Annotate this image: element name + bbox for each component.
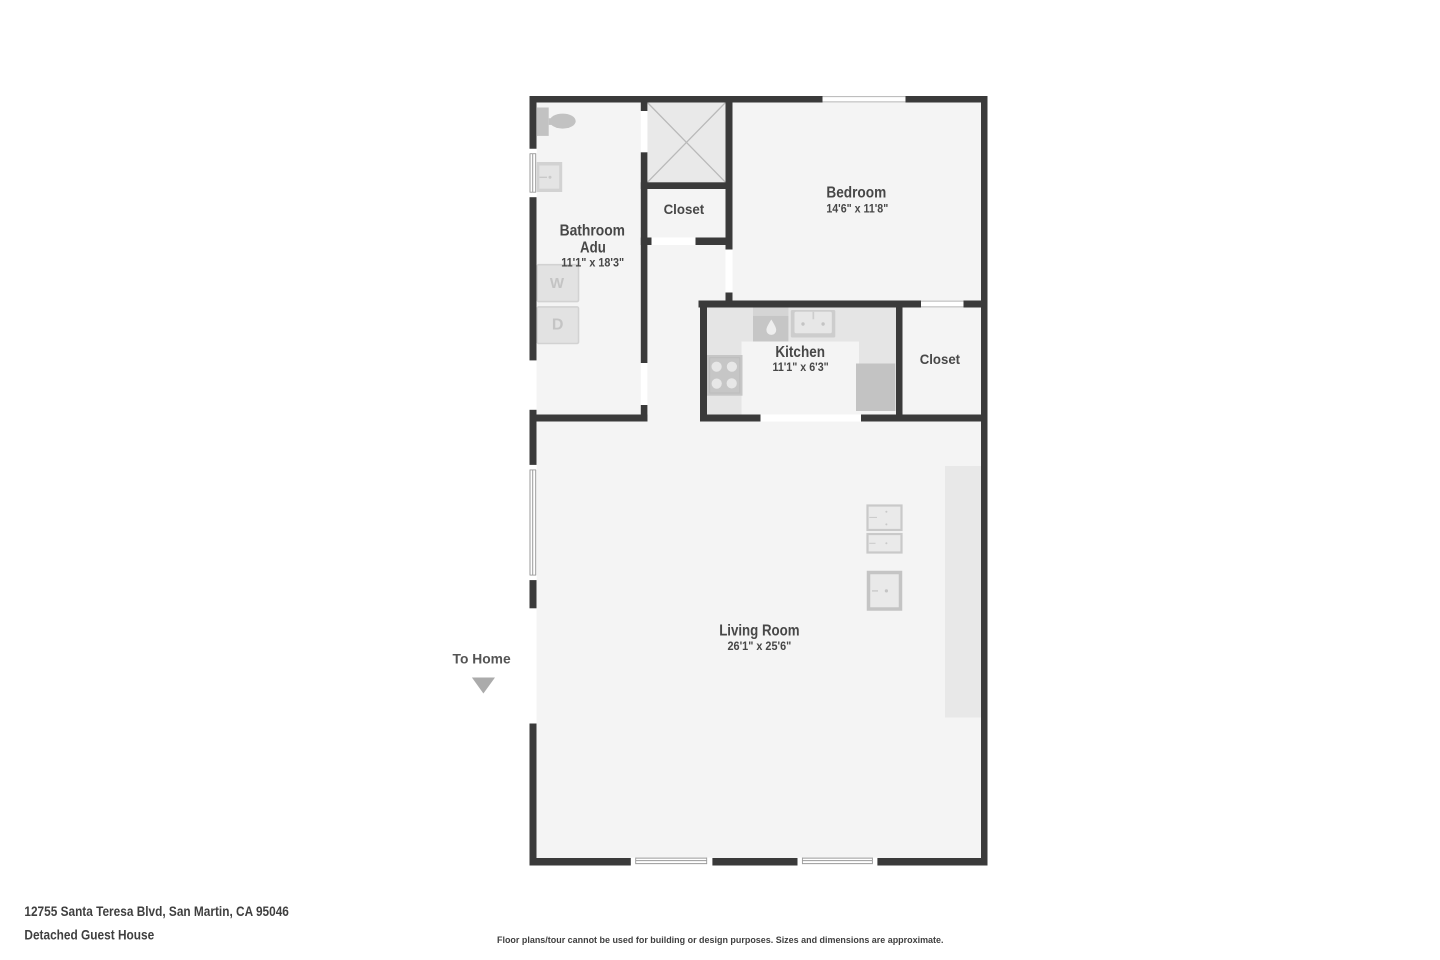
svg-text:Kitchen: Kitchen: [775, 344, 825, 361]
svg-text:Bedroom: Bedroom: [826, 184, 886, 201]
svg-text:Closet: Closet: [664, 201, 705, 217]
svg-text:12755 Santa Teresa Blvd, San M: 12755 Santa Teresa Blvd, San Martin, CA …: [24, 904, 289, 919]
svg-text:Bathroom: Bathroom: [560, 222, 625, 239]
svg-text:W: W: [550, 275, 565, 292]
svg-text:D: D: [552, 316, 564, 333]
svg-text:14'6" x 11'8": 14'6" x 11'8": [826, 203, 888, 215]
svg-text:Living Room: Living Room: [719, 623, 799, 640]
svg-text:26'1" x 25'6": 26'1" x 25'6": [728, 639, 792, 653]
svg-text:Floor plans/tour cannot be use: Floor plans/tour cannot be used for buil…: [497, 935, 944, 946]
svg-text:To Home: To Home: [453, 651, 511, 667]
svg-text:Closet: Closet: [920, 351, 961, 367]
svg-text:Detached Guest House: Detached Guest House: [24, 927, 154, 942]
svg-text:11'1" x 18'3": 11'1" x 18'3": [561, 258, 624, 270]
svg-text:Adu: Adu: [580, 240, 606, 257]
svg-text:11'1" x 6'3": 11'1" x 6'3": [772, 362, 828, 374]
